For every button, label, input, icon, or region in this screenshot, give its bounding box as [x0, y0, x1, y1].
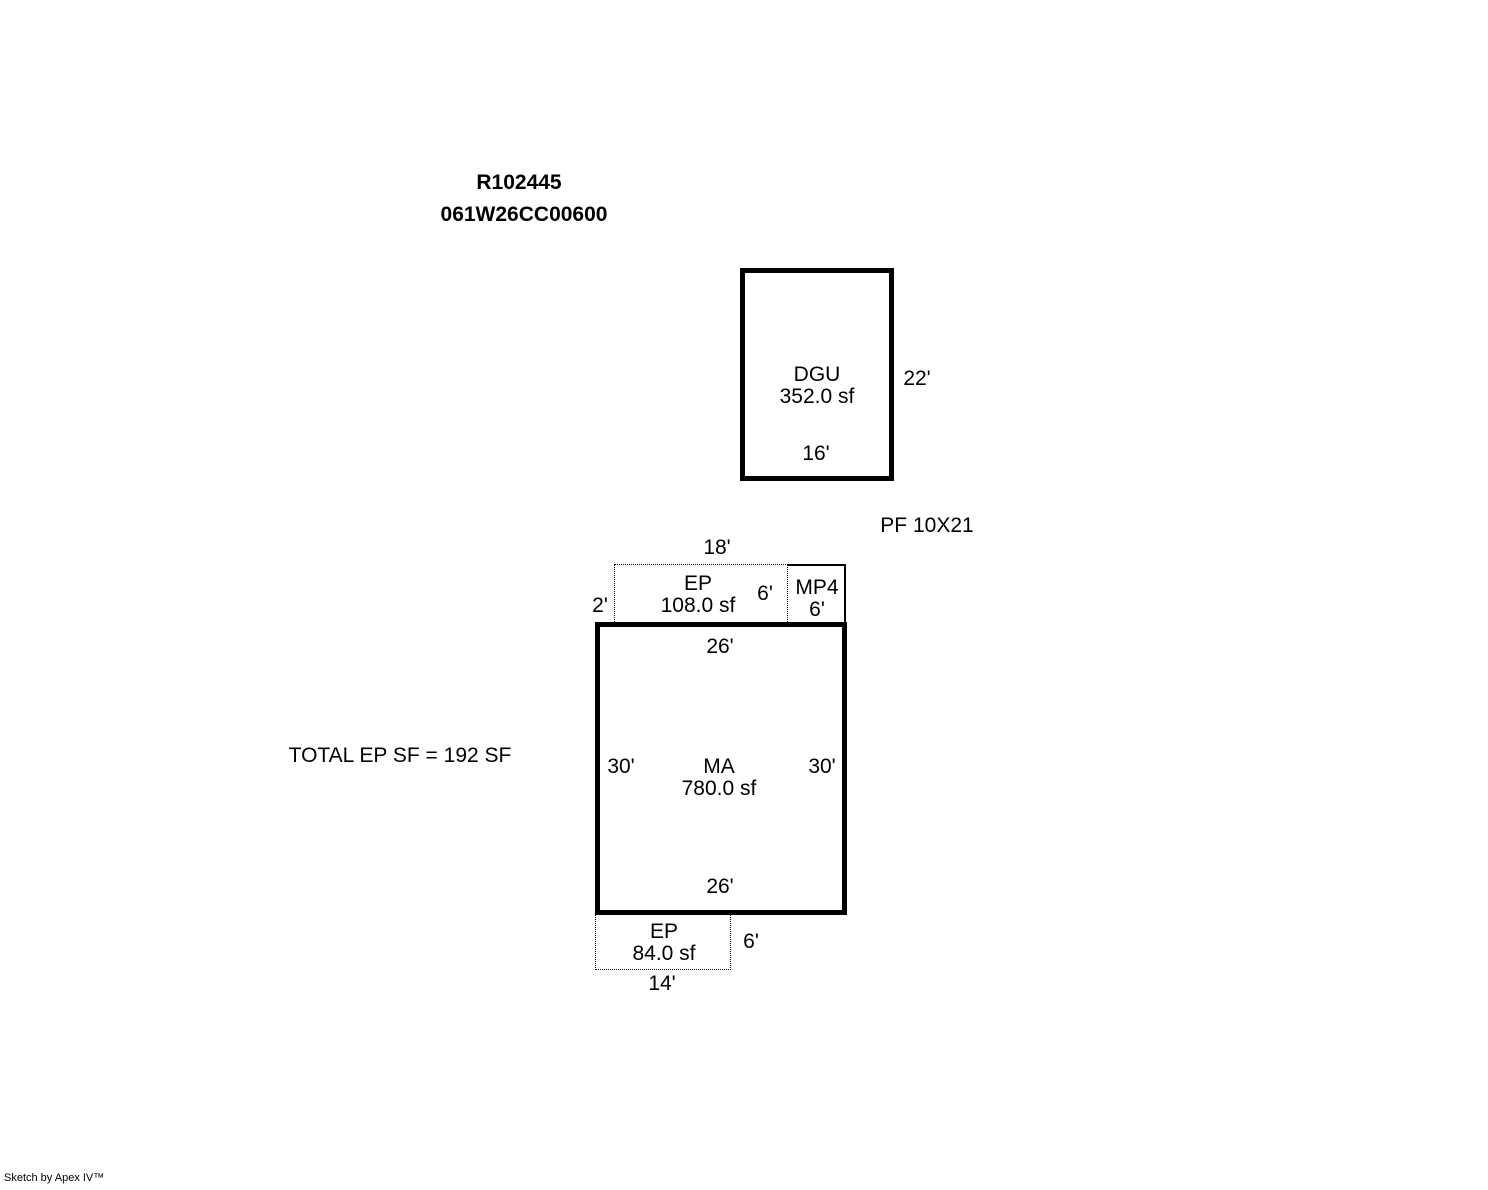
ma-dimension-right: 30' — [808, 756, 835, 778]
ep-top-area-label: EP 108.0 sf — [661, 573, 736, 617]
ep-top-dimension-left: 2' — [592, 595, 608, 617]
ep-bottom-dimension-right: 6' — [743, 931, 759, 953]
mp4-dimension: 6' — [795, 599, 838, 621]
ma-area-code: MA — [682, 756, 757, 778]
ep-top-area-sqft: 108.0 sf — [661, 595, 736, 617]
ma-dimension-left: 30' — [607, 756, 634, 778]
sketch-software-credit: Sketch by Apex IV™ — [4, 1172, 104, 1184]
dgu-dimension-right: 22' — [903, 368, 930, 390]
ep-top-dimension-right: 6' — [757, 583, 773, 605]
dgu-area-label: DGU 352.0 sf — [780, 364, 855, 408]
ma-area-sqft: 780.0 sf — [682, 778, 757, 800]
property-sketch-canvas: R102445 061W26CC00600 DGU 352.0 sf 16' 2… — [0, 0, 1488, 1190]
ep-bottom-area-sqft: 84.0 sf — [632, 943, 695, 965]
ma-area-label: MA 780.0 sf — [682, 756, 757, 800]
ep-top-area-code: EP — [661, 573, 736, 595]
ep-bottom-dimension-bottom: 14' — [648, 973, 675, 995]
dgu-dimension-bottom: 16' — [802, 443, 829, 465]
mp4-area-label: MP4 6' — [795, 577, 838, 621]
dgu-area-code: DGU — [780, 364, 855, 386]
mp4-area-code: MP4 — [795, 577, 838, 599]
pf-note: PF 10X21 — [880, 515, 973, 537]
ep-bottom-area-label: EP 84.0 sf — [632, 921, 695, 965]
sketch-id-title: R102445 — [476, 172, 561, 194]
dgu-area-sqft: 352.0 sf — [780, 386, 855, 408]
ma-dimension-bottom: 26' — [706, 876, 733, 898]
parcel-id-title: 061W26CC00600 — [441, 204, 608, 226]
ma-dimension-top: 26' — [706, 636, 733, 658]
ep-top-dimension-top: 18' — [703, 537, 730, 559]
ep-bottom-area-code: EP — [632, 921, 695, 943]
total-ep-note: TOTAL EP SF = 192 SF — [289, 745, 512, 767]
